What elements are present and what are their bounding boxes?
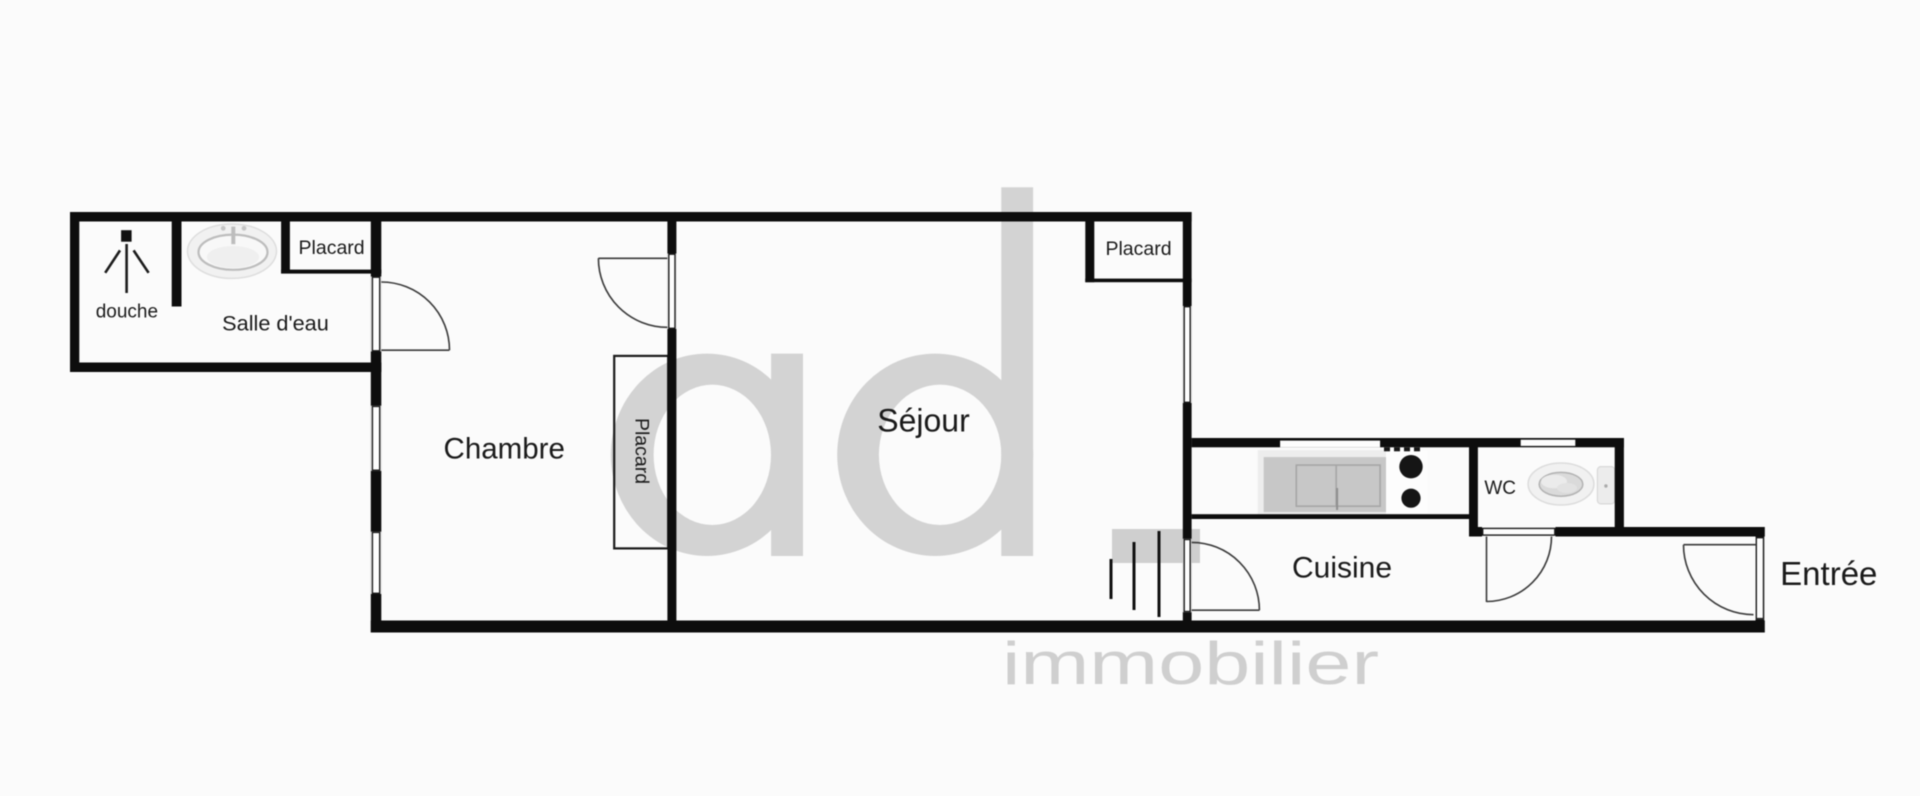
svg-text:Entrée: Entrée (1780, 555, 1877, 592)
svg-text:Séjour: Séjour (877, 402, 970, 438)
svg-text:Salle d'eau: Salle d'eau (222, 311, 329, 336)
svg-text:Cuisine: Cuisine (1292, 552, 1392, 585)
svg-text:Placard: Placard (1105, 238, 1171, 260)
svg-text:Placard: Placard (299, 237, 365, 259)
svg-text:douche: douche (96, 302, 158, 323)
svg-text:Chambre: Chambre (444, 432, 565, 465)
svg-text:Placard: Placard (631, 418, 653, 484)
svg-text:WC: WC (1484, 478, 1516, 499)
svg-text:immobilier: immobilier (1002, 630, 1379, 697)
